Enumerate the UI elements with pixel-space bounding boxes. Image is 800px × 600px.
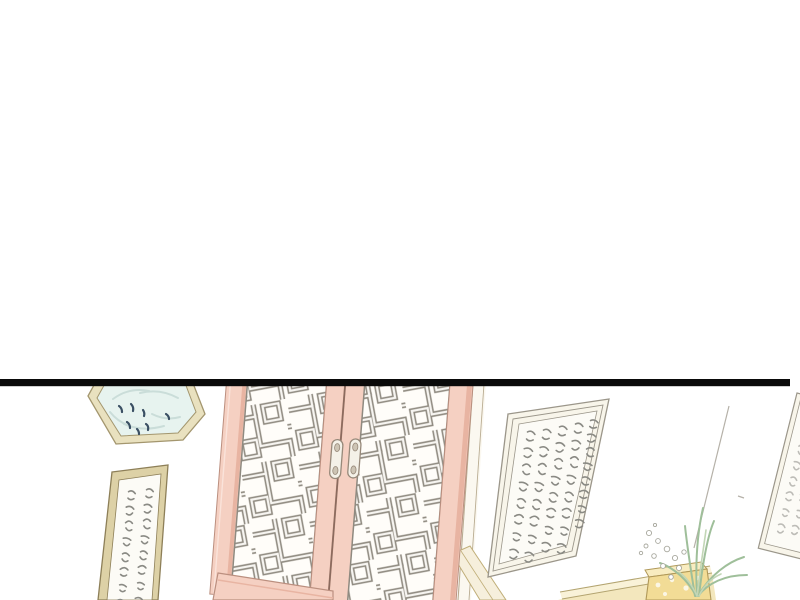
right-scroll: [758, 393, 800, 560]
left-scroll: [98, 465, 168, 600]
panel-border: [0, 379, 790, 386]
door-handle-left: [329, 439, 343, 479]
room-illustration: [0, 0, 800, 600]
lattice-doors: [210, 367, 473, 600]
comic-panel: [0, 0, 800, 600]
wall-mark: [738, 496, 744, 498]
wall-plaque: [488, 399, 609, 577]
door-handle-right: [347, 439, 361, 479]
hex-plate: [88, 350, 205, 444]
